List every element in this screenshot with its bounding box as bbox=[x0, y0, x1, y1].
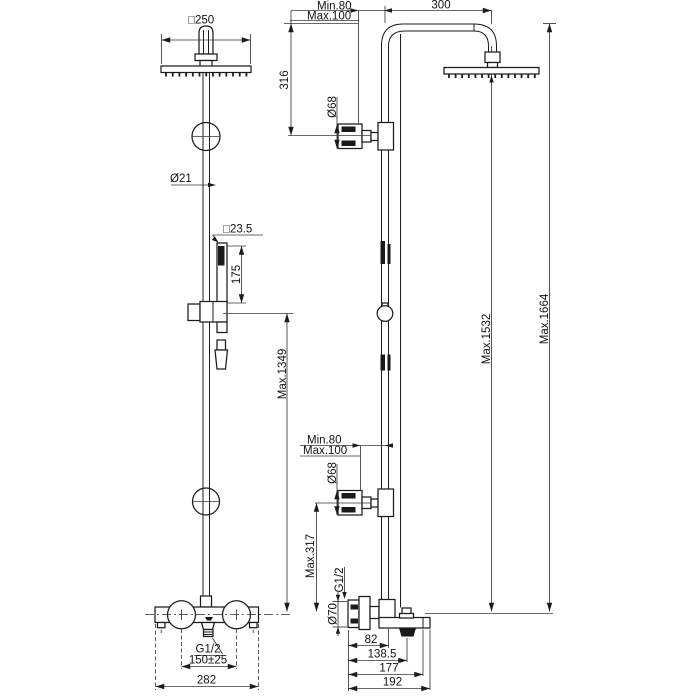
dim-label-square-23-5: □23.5 bbox=[223, 224, 252, 236]
hand-shower-wand bbox=[217, 243, 227, 305]
right-inlet-foot bbox=[250, 623, 258, 628]
dim-label-g12-side: G1/2 bbox=[334, 568, 346, 593]
dim-label-dia-68-top: Ø68 bbox=[327, 96, 339, 118]
dim-label-150-25: 150±25 bbox=[189, 655, 227, 667]
dim-label-282: 282 bbox=[197, 675, 216, 687]
shower-column-technical-drawing: Max.1532 bbox=[0, 0, 700, 700]
dim-label-192: 192 bbox=[383, 677, 402, 689]
dim-label-square-250: □250 bbox=[188, 15, 214, 27]
hose-connector-cone bbox=[215, 340, 228, 369]
ball-clamp-lower-side bbox=[193, 488, 220, 515]
outlet-thread bbox=[204, 630, 214, 637]
dim-label-138-5: 138.5 bbox=[368, 649, 397, 661]
head-nut bbox=[485, 52, 500, 63]
handshower-overlap-upper bbox=[381, 241, 386, 264]
dim-label-dia-70: Ø70 bbox=[328, 603, 340, 625]
bracket-clamp-lower bbox=[378, 489, 394, 517]
dim-label-max100-mid: Max.100 bbox=[303, 445, 347, 457]
bracket-clamp-upper bbox=[378, 123, 394, 151]
dim-label-dia-68-mid: Ø68 bbox=[327, 462, 339, 484]
handshower-overlap-lower bbox=[381, 355, 386, 371]
holder-knob bbox=[188, 304, 200, 321]
drawing-canvas: Max.1532 bbox=[0, 0, 700, 700]
handshower-overlap-upper2 bbox=[388, 244, 391, 264]
dim-label-300: 300 bbox=[431, 0, 450, 12]
dim-label-max-317: Max.317 bbox=[305, 534, 317, 578]
spout-body bbox=[379, 618, 430, 629]
swivel-joint bbox=[195, 54, 217, 61]
dim-label-max100-top: Max.100 bbox=[307, 11, 351, 23]
dim-label-175: 175 bbox=[231, 265, 243, 284]
aerator-outlet bbox=[399, 628, 416, 637]
dim-label-177: 177 bbox=[379, 663, 398, 675]
dim-label-max-1349: Max.1349 bbox=[277, 349, 289, 400]
dim-label-316: 316 bbox=[279, 70, 291, 89]
dim-label-max-1532: Max.1532 bbox=[481, 314, 493, 365]
handshower-overlap-lower2 bbox=[388, 355, 391, 371]
paper-background bbox=[0, 0, 700, 700]
dim-label-max-1664: Max.1664 bbox=[539, 293, 551, 344]
dim-label-82: 82 bbox=[365, 634, 378, 646]
spray-face bbox=[218, 246, 225, 266]
shower-head-plate-side bbox=[161, 66, 251, 73]
shower-head-plate-front bbox=[444, 68, 539, 75]
outlet-cup bbox=[202, 623, 215, 630]
left-inlet-foot bbox=[158, 623, 166, 628]
dim-label-dia-21: Ø21 bbox=[170, 173, 192, 185]
pipe-coupling bbox=[201, 596, 212, 607]
ball-clamp-upper-side bbox=[192, 123, 220, 151]
